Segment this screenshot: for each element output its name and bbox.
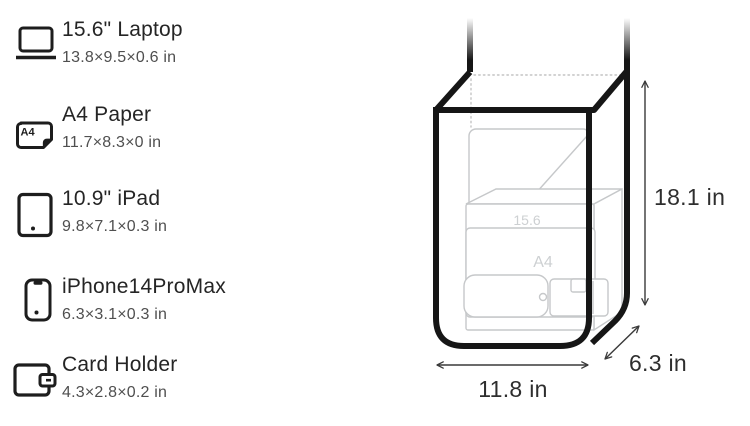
width-dimension-label: 11.8 in (478, 376, 547, 402)
product-dimension-figure: 15.6" Laptop 13.8×9.5×0.6 in A4 A4 Paper… (0, 0, 750, 426)
depth-dimension-label: 6.3 in (629, 350, 687, 376)
bag-dimension-diagram: 15.6 A4 18.1 (0, 0, 750, 426)
bag-contents-outlines: 15.6 A4 (464, 129, 622, 330)
inner-a4-label: A4 (533, 254, 553, 271)
inner-iphone-outline (464, 275, 548, 317)
height-dimension-label: 18.1 in (654, 184, 725, 210)
inner-cardholder-tab (571, 279, 586, 292)
inner-laptop-label: 15.6 (513, 212, 540, 228)
bag-top-edges (436, 71, 627, 110)
